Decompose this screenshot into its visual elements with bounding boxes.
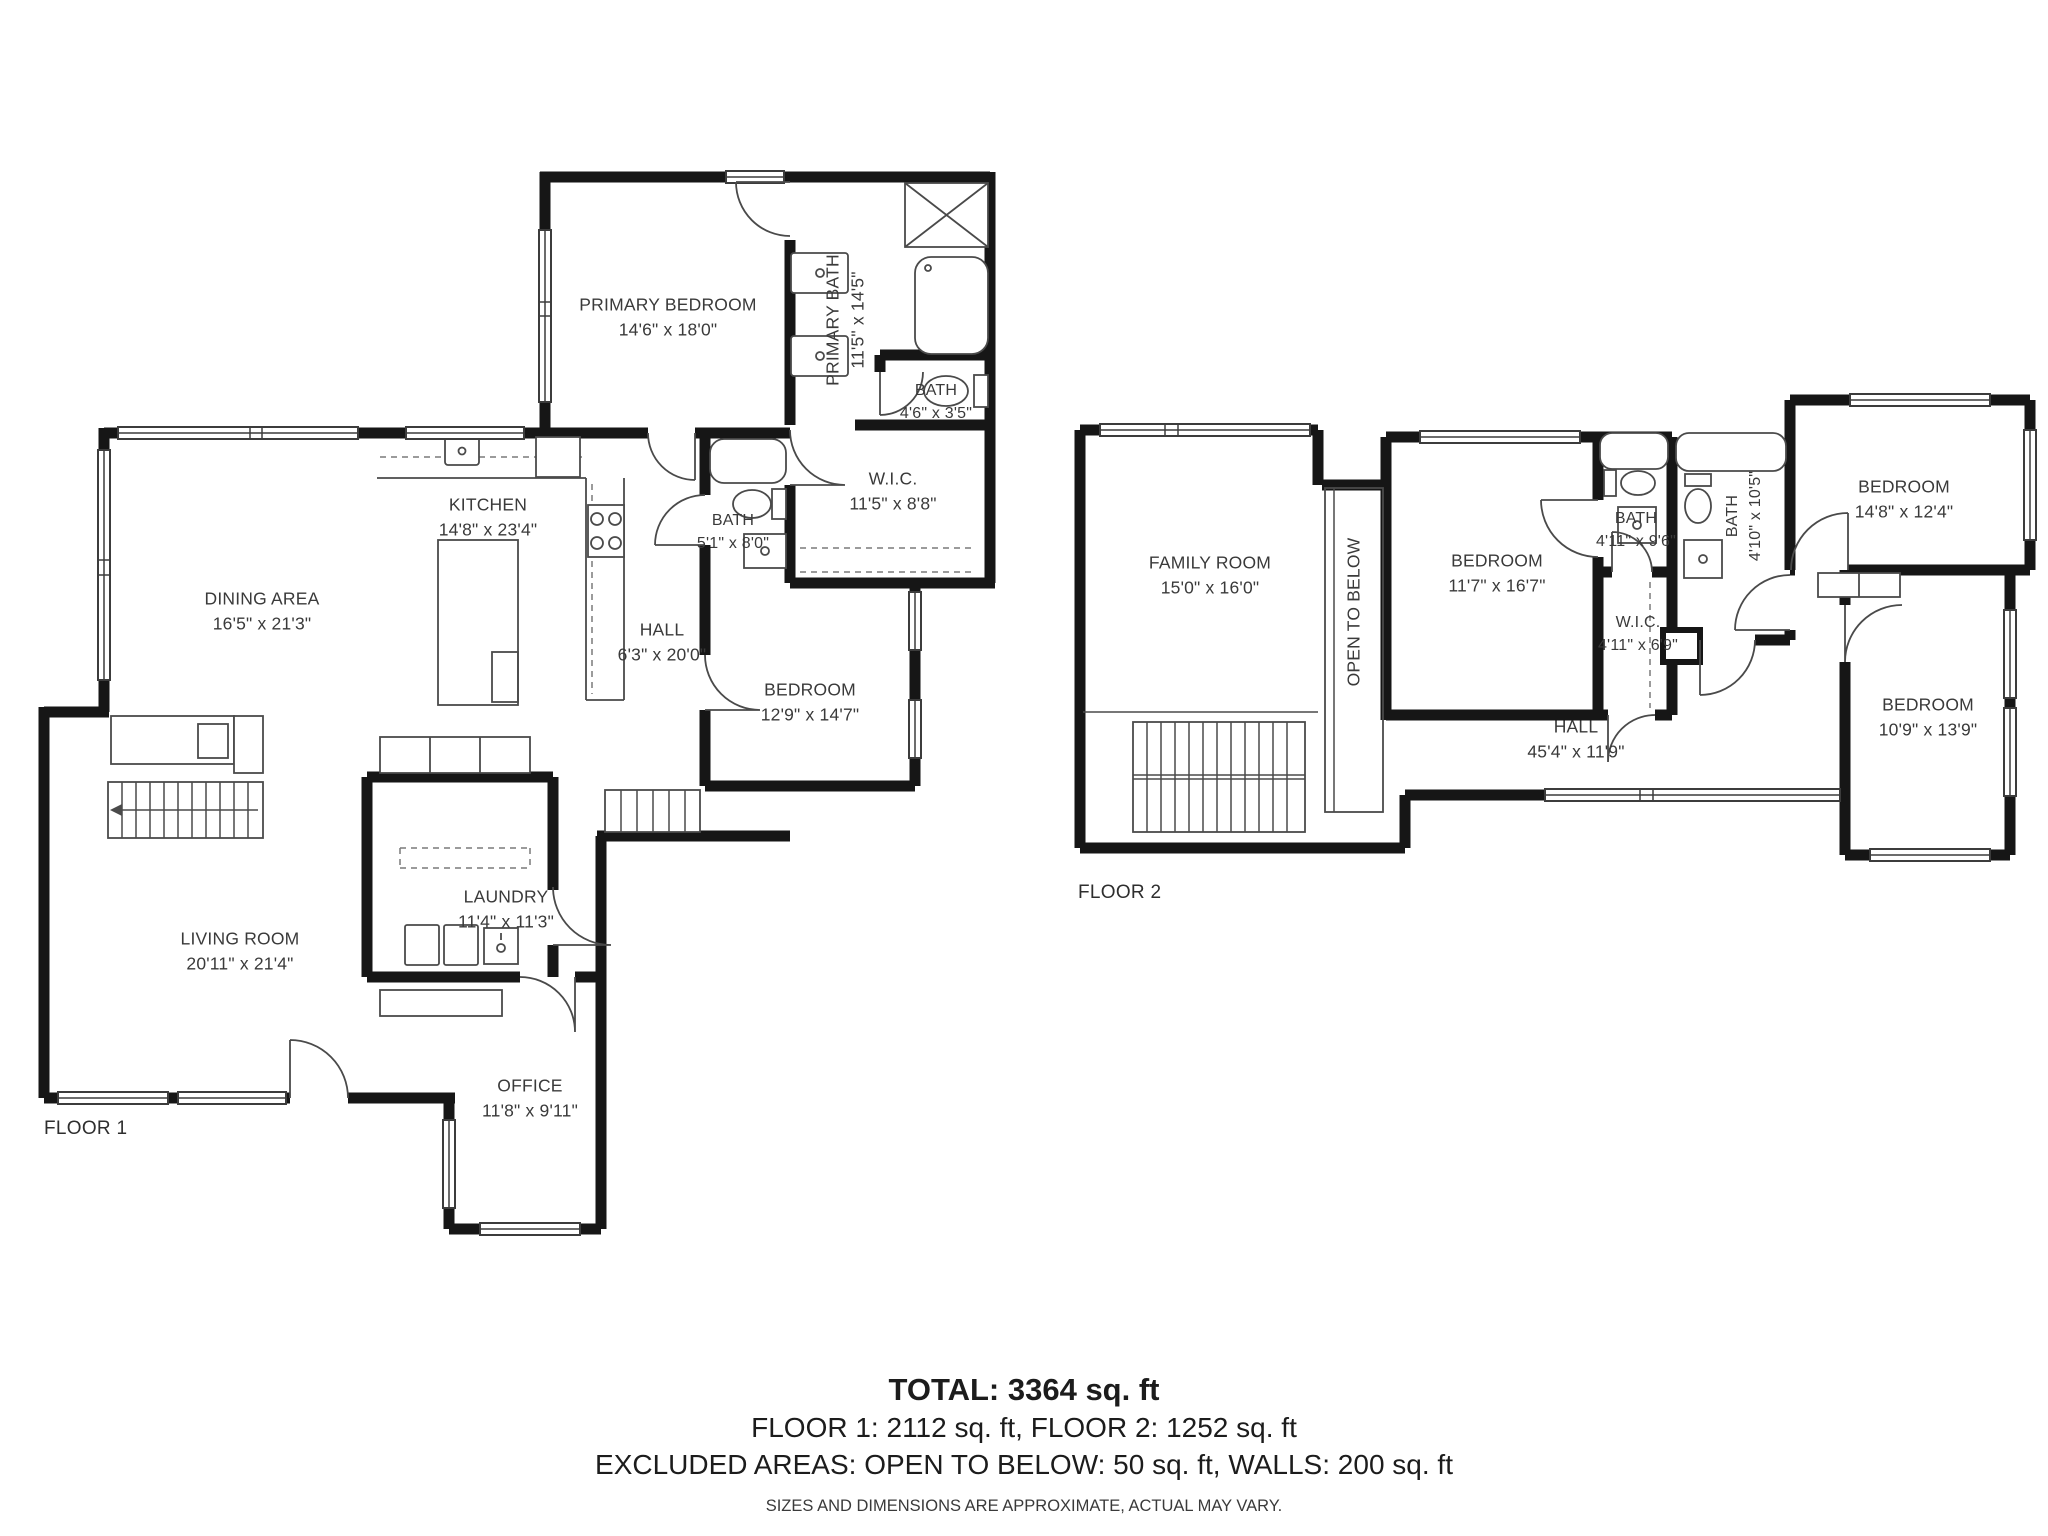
room-label-kitchen: KITCHEN 14'8" x 23'4" — [439, 493, 538, 544]
room-name: BEDROOM — [1855, 475, 1954, 500]
room-dims: 5'1" x 8'0" — [697, 532, 769, 555]
room-name: LAUNDRY — [458, 885, 554, 910]
room-dims: 10'9" x 13'9" — [1879, 718, 1978, 743]
room-name: FAMILY ROOM — [1149, 551, 1271, 576]
room-dims: 11'8" x 9'11" — [482, 1099, 578, 1124]
room-dims: 11'5" x 8'8" — [849, 492, 936, 517]
room-name: BATH — [697, 509, 769, 532]
room-label-wic-floor1: W.I.C. 11'5" x 8'8" — [849, 467, 936, 518]
room-dims: 45'4" x 11'9" — [1527, 740, 1624, 765]
excluded-areas-text: EXCLUDED AREAS: OPEN TO BELOW: 50 sq. ft… — [0, 1449, 2048, 1481]
room-label-primary-bath: PRIMARY BATH 11'5" x 14'5" — [821, 254, 872, 386]
room-label-bedroom-floor1: BEDROOM 12'9" x 14'7" — [761, 678, 860, 729]
room-label-laundry: LAUNDRY 11'4" x 11'3" — [458, 885, 554, 936]
room-dims: 14'6" x 18'0" — [579, 318, 756, 343]
room-dims: 4'11" x 9'6" — [1596, 530, 1676, 553]
room-dims: 6'3" x 20'0" — [618, 643, 707, 668]
room-dims: 14'8" x 12'4" — [1855, 500, 1954, 525]
room-name: LIVING ROOM — [181, 927, 300, 952]
room-name: DINING AREA — [204, 587, 319, 612]
room-name: BEDROOM — [761, 678, 860, 703]
room-dims: 4'6" x 3'5" — [900, 402, 972, 425]
room-name: HALL — [618, 618, 707, 643]
room-label-bedroom2-topright: BEDROOM 14'8" x 12'4" — [1855, 475, 1954, 526]
room-name: BATH — [1721, 471, 1744, 561]
room-dims: 4'11" x 6'9" — [1598, 634, 1678, 657]
room-label-hall-floor2: HALL 45'4" x 11'9" — [1527, 715, 1624, 766]
room-label-primary-bedroom: PRIMARY BEDROOM 14'6" x 18'0" — [579, 293, 756, 344]
room-label-office: OFFICE 11'8" x 9'11" — [482, 1074, 578, 1125]
room-label-bedroom2-bottomright: BEDROOM 10'9" x 13'9" — [1879, 693, 1978, 744]
room-label-wic-floor2: W.I.C. 4'11" x 6'9" — [1598, 611, 1678, 657]
floor2-tag: FLOOR 2 — [1078, 882, 1161, 904]
room-dims: 16'5" x 21'3" — [204, 612, 319, 637]
room-name: BATH — [1596, 507, 1676, 530]
room-label-bath2-left: BATH 4'11" x 9'6" — [1596, 507, 1676, 553]
room-dims: 15'0" x 16'0" — [1149, 576, 1271, 601]
room-name: OPEN TO BELOW — [1341, 538, 1366, 687]
summary-footer: TOTAL: 3364 sq. ft FLOOR 1: 2112 sq. ft,… — [0, 1372, 2048, 1516]
room-label-dining-area: DINING AREA 16'5" x 21'3" — [204, 587, 319, 638]
room-label-hall-floor1: HALL 6'3" x 20'0" — [618, 618, 707, 669]
floor2-plan — [1080, 394, 2036, 861]
room-label-bath2-right: BATH 4'10" x 10'5" — [1721, 471, 1767, 561]
floorplan-page: PRIMARY BEDROOM 14'6" x 18'0" PRIMARY BA… — [0, 0, 2048, 1536]
room-label-family-room: FAMILY ROOM 15'0" x 16'0" — [1149, 551, 1271, 602]
room-name: KITCHEN — [439, 493, 538, 518]
room-name: W.I.C. — [849, 467, 936, 492]
room-name: HALL — [1527, 715, 1624, 740]
room-name: PRIMARY BATH — [821, 254, 846, 386]
room-label-bedroom2-left: BEDROOM 11'7" x 16'7" — [1448, 549, 1545, 600]
room-name: BATH — [900, 379, 972, 402]
room-name: BEDROOM — [1448, 549, 1545, 574]
room-name: PRIMARY BEDROOM — [579, 293, 756, 318]
room-name: W.I.C. — [1598, 611, 1678, 634]
disclaimer-text: SIZES AND DIMENSIONS ARE APPROXIMATE, AC… — [0, 1497, 2048, 1516]
room-label-living-room: LIVING ROOM 20'11" x 21'4" — [181, 927, 300, 978]
floor-areas-text: FLOOR 1: 2112 sq. ft, FLOOR 2: 1252 sq. … — [0, 1412, 2048, 1444]
room-label-bath-hall: BATH 5'1" x 8'0" — [697, 509, 769, 555]
room-dims: 11'5" x 14'5" — [846, 254, 871, 386]
room-dims: 11'4" x 11'3" — [458, 910, 554, 935]
room-dims: 12'9" x 14'7" — [761, 703, 860, 728]
floorplan-drawing — [0, 0, 2048, 1536]
floor1-tag: FLOOR 1 — [44, 1118, 127, 1140]
room-dims: 14'8" x 23'4" — [439, 518, 538, 543]
room-label-bath-small: BATH 4'6" x 3'5" — [900, 379, 972, 425]
room-name: OFFICE — [482, 1074, 578, 1099]
total-area-text: TOTAL: 3364 sq. ft — [0, 1372, 2048, 1408]
room-dims: 11'7" x 16'7" — [1448, 574, 1545, 599]
room-dims: 4'10" x 10'5" — [1744, 471, 1767, 561]
room-label-open-to-below: OPEN TO BELOW — [1341, 538, 1366, 687]
room-name: BEDROOM — [1879, 693, 1978, 718]
room-dims: 20'11" x 21'4" — [181, 952, 300, 977]
